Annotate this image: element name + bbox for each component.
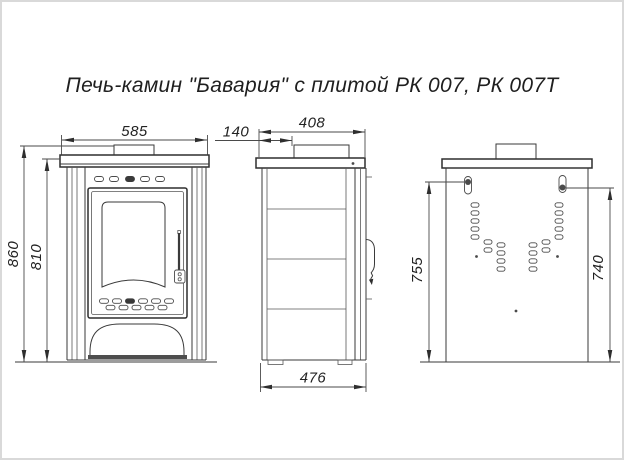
vent-hole	[110, 177, 119, 182]
svg-text:408: 408	[299, 115, 326, 132]
svg-text:140: 140	[223, 124, 250, 141]
dim-arrow	[22, 350, 27, 362]
dim-arrow	[608, 350, 613, 362]
front-door-frame-inner	[92, 192, 184, 315]
dim-flue-offset: 140	[215, 124, 292, 147]
dim-arrow	[427, 350, 432, 362]
dim-mount-left: 755	[409, 182, 464, 362]
vent-hole	[119, 305, 128, 310]
vent-hole	[497, 243, 505, 247]
vent-hole	[113, 299, 122, 304]
svg-text:810: 810	[28, 244, 45, 271]
svg-text:740: 740	[590, 255, 607, 282]
dim-arrow	[62, 138, 74, 143]
back-dot	[556, 255, 559, 258]
vent-hole	[132, 305, 141, 310]
vent-hole	[555, 235, 563, 239]
side-door-handle	[366, 240, 375, 286]
front-ash-arch	[90, 324, 184, 355]
dim-arrow	[45, 159, 50, 171]
stove-technical-drawing: 585 140 408 476	[2, 2, 624, 460]
vent-hole	[471, 227, 479, 231]
back-chimney-collar	[496, 144, 536, 159]
dim-arrow	[353, 130, 365, 135]
front-door-glass	[102, 202, 165, 287]
vent-hole	[497, 267, 505, 271]
svg-text:585: 585	[121, 123, 148, 140]
dim-arrow	[608, 188, 613, 200]
vent-hole	[497, 259, 505, 263]
vent-hole	[555, 227, 563, 231]
vent-hole	[484, 240, 492, 244]
back-top-plate	[442, 159, 592, 168]
dim-arrow	[260, 385, 272, 390]
vent-hole	[484, 248, 492, 252]
svg-text:476: 476	[300, 370, 327, 387]
front-top-plate	[60, 155, 209, 167]
dim-arrow	[354, 385, 366, 390]
back-vents-left	[471, 203, 505, 271]
vent-hole	[529, 259, 537, 263]
vent-hole	[529, 267, 537, 271]
side-foot	[338, 360, 352, 365]
side-body	[262, 162, 372, 364]
vent-hole	[497, 251, 505, 255]
back-mount-slot-left	[465, 177, 472, 195]
vent-hole	[106, 305, 115, 310]
back-panel	[446, 168, 588, 362]
side-top-plate	[256, 158, 365, 168]
vent-hole	[95, 177, 104, 182]
dim-side-depth-overall: 476	[260, 363, 366, 392]
vent-hole	[471, 203, 479, 207]
side-chimney-collar	[294, 145, 349, 158]
vent-hole	[165, 299, 174, 304]
svg-text:755: 755	[409, 257, 426, 284]
dim-height-body: 810	[28, 159, 60, 362]
dim-arrow	[427, 182, 432, 194]
vent-hole	[542, 240, 550, 244]
svg-text:860: 860	[5, 241, 22, 268]
back-dot	[475, 255, 478, 258]
vent-hole	[100, 299, 109, 304]
front-view	[15, 145, 217, 362]
front-lower-vents	[100, 299, 174, 310]
back-center-dot	[515, 310, 518, 313]
vent-hole	[471, 219, 479, 223]
vent-hole	[529, 243, 537, 247]
vent-hole-dark	[126, 299, 135, 304]
back-mount-slot-right	[559, 176, 566, 193]
vent-hole	[152, 299, 161, 304]
vent-hole	[471, 235, 479, 239]
handle-tip	[369, 279, 373, 285]
vent-hole	[139, 299, 148, 304]
dim-front-width: 585	[62, 123, 208, 155]
side-foot	[268, 360, 283, 365]
vent-hole	[471, 211, 479, 215]
dim-arrow	[280, 138, 292, 143]
vent-hole	[529, 251, 537, 255]
front-chimney-collar	[114, 145, 154, 155]
side-view	[256, 145, 375, 365]
vent-hole	[542, 248, 550, 252]
vent-hole	[555, 211, 563, 215]
dim-arrow	[22, 146, 27, 158]
vent-hole	[555, 203, 563, 207]
front-top-vents	[95, 177, 165, 182]
vent-hole-dark	[126, 177, 135, 182]
dim-arrow	[259, 130, 271, 135]
side-plate-dot	[352, 162, 355, 165]
vent-hole	[158, 305, 167, 310]
drawing-canvas: Печь-камин "Бавария" с плитой РК 007, РК…	[0, 0, 624, 460]
back-vents-right	[529, 203, 563, 271]
vent-hole	[555, 219, 563, 223]
dim-arrow	[259, 138, 271, 143]
back-view	[420, 144, 620, 362]
front-base-strip	[88, 355, 187, 359]
vent-hole	[141, 177, 150, 182]
dim-arrow	[45, 350, 50, 362]
dim-arrow	[195, 138, 207, 143]
vent-hole	[156, 177, 165, 182]
vent-hole	[145, 305, 154, 310]
dim-mount-right: 740	[566, 188, 614, 362]
